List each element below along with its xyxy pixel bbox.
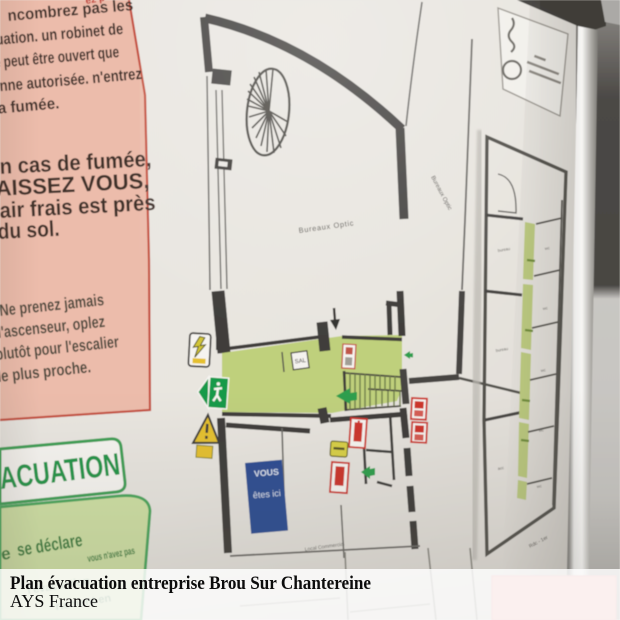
svg-text:AYS France: AYS France: [10, 591, 98, 611]
